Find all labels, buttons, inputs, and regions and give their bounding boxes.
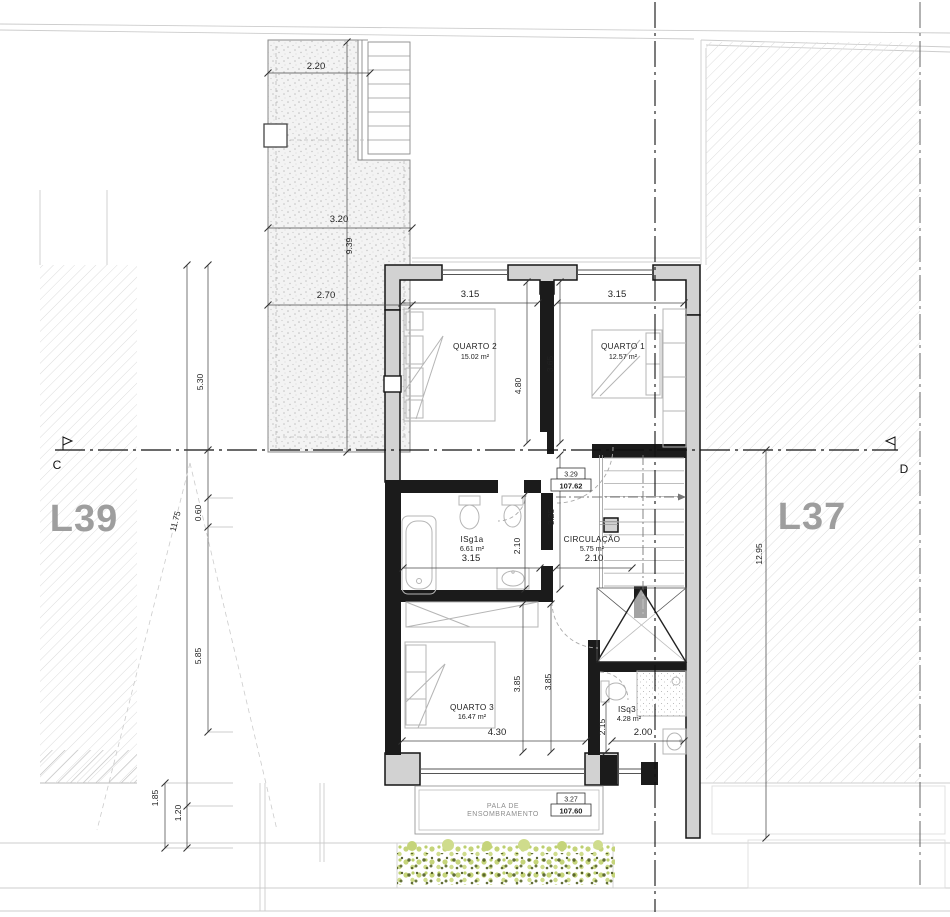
room-label-isg1a: ISg1a xyxy=(461,535,484,544)
skylight-triangle xyxy=(597,588,686,662)
floor-plan-canvas: L39 L37 xyxy=(0,0,950,917)
dim-1295: 12.95 xyxy=(754,543,764,565)
dim-bath-height: 2.10 xyxy=(512,537,522,554)
shower-isq3-icon xyxy=(637,671,686,716)
room-area-isq3: 4.28 m² xyxy=(617,714,642,723)
dim-q3-height-a: 3.85 xyxy=(512,675,522,692)
dim-q1-height: 3.65 xyxy=(545,355,555,372)
room-area-quarto3: 16.47 m² xyxy=(458,712,487,721)
room-area-quarto2: 15.02 m² xyxy=(461,352,490,361)
room-area-quarto1: 12.57 m² xyxy=(609,352,638,361)
dim-120: 1.20 xyxy=(173,804,183,821)
pala-label-line2: ENSOMBRAMENTO xyxy=(467,811,539,818)
dim-q1-width: 3.15 xyxy=(608,289,627,300)
dim-circ-width: 2.10 xyxy=(585,553,604,564)
dim-585: 5.85 xyxy=(193,647,203,664)
floor-plan-svg: L39 L37 xyxy=(0,0,950,917)
dim-q3-width: 4.30 xyxy=(488,727,507,738)
room-area-isg1a: 6.61 m² xyxy=(460,544,485,553)
bidet-isg1a-icon xyxy=(502,496,523,527)
toilet-isg1a-icon xyxy=(459,496,480,529)
dim-530: 5.30 xyxy=(195,373,205,390)
dim-220: 2.20 xyxy=(307,61,326,72)
dim-1175: 11.75 xyxy=(168,510,183,533)
patio-box xyxy=(264,124,287,147)
dim-q2-width: 3.15 xyxy=(461,289,480,300)
exterior-stairs xyxy=(368,42,410,154)
sink-isq3-icon xyxy=(663,729,686,754)
level-upper-elevation: 107.62 xyxy=(560,482,583,491)
dim-q3-height-b: 3.85 xyxy=(543,673,553,690)
circulation-column xyxy=(604,518,618,532)
dim-939: 9.39 xyxy=(344,237,354,254)
dim-270: 2.70 xyxy=(317,290,336,301)
level-lower-elevation: 107.60 xyxy=(560,807,583,816)
stair-direction-arrow xyxy=(678,494,686,501)
dim-q2-height: 4.80 xyxy=(513,377,523,394)
bathtub-icon xyxy=(402,516,436,594)
room-label-quarto2: QUARTO 2 xyxy=(453,342,497,351)
lot-label-left: L39 xyxy=(50,498,118,540)
wall-vent-square xyxy=(384,376,401,392)
lot-label-right: L37 xyxy=(778,496,846,538)
dim-isq3-width: 2.00 xyxy=(634,727,653,738)
bed-quarto1-icon xyxy=(592,330,662,398)
dim-060: 0.60 xyxy=(193,504,203,521)
level-lower-height: 3.27 xyxy=(564,797,578,804)
room-label-quarto1: QUARTO 1 xyxy=(601,342,645,351)
dim-325: 3.25 xyxy=(546,508,556,525)
dim-isq3-height: 2.15 xyxy=(597,718,607,735)
dim-bath-width: 3.15 xyxy=(462,553,481,564)
room-area-circulacao: 5.75 m² xyxy=(580,544,605,553)
wardrobe-quarto1-icon xyxy=(663,309,686,447)
room-label-circulacao: CIRCULAÇÃO xyxy=(564,534,621,544)
room-label-quarto3: QUARTO 3 xyxy=(450,703,494,712)
toilet-isq3-icon xyxy=(601,681,626,702)
lot-hatch-right xyxy=(706,42,920,783)
level-upper-height: 3.29 xyxy=(564,472,578,479)
section-marker-d: D xyxy=(900,462,909,476)
sink-isg1a-icon xyxy=(497,568,529,589)
bed-quarto2-icon xyxy=(404,309,495,421)
section-marker-c: C xyxy=(53,458,62,472)
pala-label-line1: PALA DE xyxy=(487,803,519,810)
dim-185: 1.85 xyxy=(150,789,160,806)
vegetation-band xyxy=(397,839,615,888)
dim-320: 3.20 xyxy=(330,214,349,225)
room-label-isq3: ISq3 xyxy=(618,705,636,714)
closet-quarto3-icon xyxy=(406,602,538,627)
